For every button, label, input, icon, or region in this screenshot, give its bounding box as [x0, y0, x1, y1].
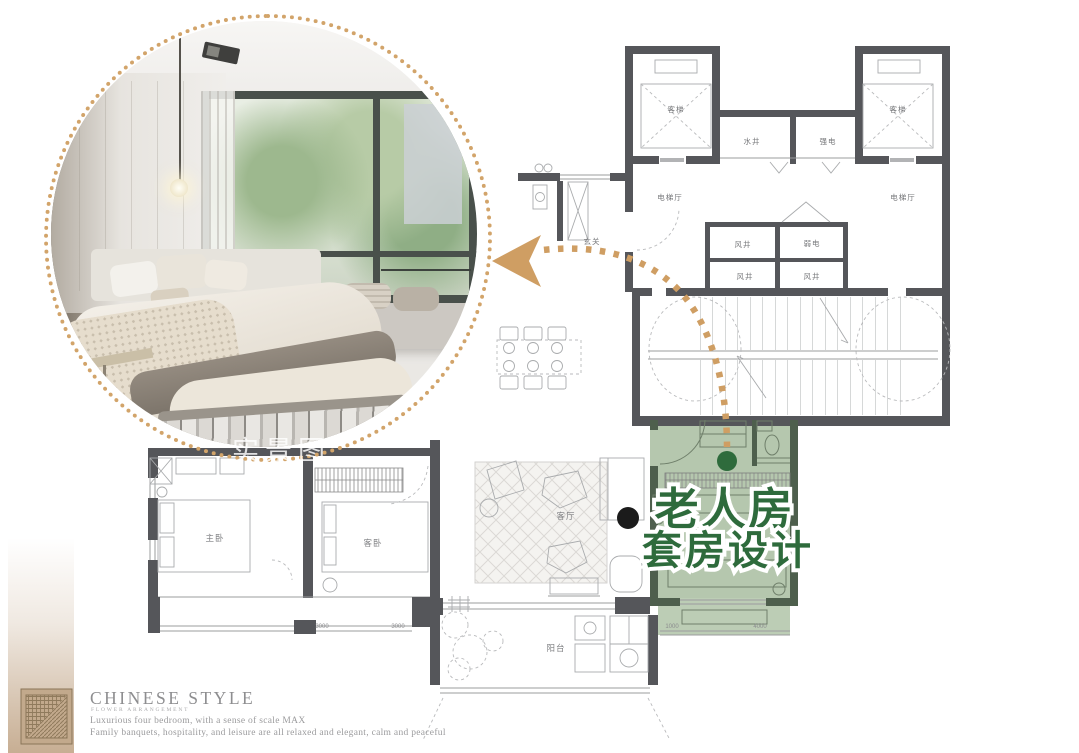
bedroom-photo: [51, 21, 477, 447]
label-guest: 客卧: [363, 538, 382, 548]
utility-shafts-top: 水井 强电: [720, 110, 855, 173]
label-living: 客厅: [556, 511, 575, 521]
callout-trail: [492, 235, 727, 447]
dim-master: 3000: [315, 624, 329, 630]
pendant-light: [170, 179, 188, 197]
suite-callout: 老人房 套房设计: [642, 485, 814, 573]
label-entry: 玄关: [584, 236, 601, 246]
brand-title: CHINESE STYLE: [90, 688, 255, 709]
callout-line1: 老人房: [655, 485, 796, 534]
label-master: 主卧: [205, 533, 224, 543]
label-hall-left: 电梯厅: [657, 192, 683, 202]
dim-suite-1: 1000: [665, 624, 679, 630]
brand-description-line1: Luxurious four bedroom, with a sense of …: [90, 716, 305, 726]
window-rail: [381, 269, 471, 271]
label-wind-shaft-3: 风井: [804, 271, 821, 281]
label-water-shaft: 水井: [744, 136, 761, 146]
desk-stool: [617, 507, 639, 529]
dim-guest: 3000: [391, 624, 405, 630]
bedrooms: 主卧 客卧 3000 3000: [148, 440, 440, 634]
photo-circle-border: [44, 14, 492, 462]
brand-subtitle: FLOWER ARRANGEMENT: [91, 707, 189, 713]
bench-cushion: [393, 287, 439, 311]
label-elevator-right: 客梯: [890, 104, 907, 114]
pillow: [204, 259, 249, 291]
living-room: 客厅: [475, 458, 644, 596]
brand-description-line2: Family banquets, hospitality, and leisur…: [90, 728, 446, 738]
elevator-block: 客梯 客梯: [625, 46, 950, 164]
balcony: 阳台: [423, 596, 670, 740]
label-wind-shaft-2: 风井: [737, 271, 754, 281]
stairwell: [632, 288, 950, 426]
wind-shafts-block: 风井 弱电 风井 风井: [705, 202, 848, 293]
arrowhead: [492, 235, 541, 287]
window-mullion: [373, 91, 380, 303]
label-elevator-left: 客梯: [668, 104, 685, 114]
label-wind-shaft-1: 风井: [735, 239, 752, 249]
pillow: [156, 253, 208, 290]
entry-kitchen: 玄关: [518, 164, 632, 246]
label-hall-right: 电梯厅: [890, 192, 916, 202]
side-table-leg: [103, 365, 106, 411]
photo-watermark: 实景图: [232, 429, 331, 468]
label-weak-electric: 弱电: [804, 238, 821, 248]
dim-suite-2: 4000: [753, 624, 767, 630]
dining-set: [497, 327, 581, 389]
pendant-cord: [179, 21, 181, 181]
presentation-sheet: 客梯 客梯 水井 强电 电梯厅 电梯厅 风井 弱电 风井 风井: [0, 0, 1079, 753]
callout-line2: 套房设计: [642, 528, 814, 573]
window-building: [404, 104, 462, 224]
callout-anchor-dot: [717, 451, 737, 471]
label-strong-electric: 强电: [820, 136, 837, 146]
brand-logo: [20, 688, 73, 745]
label-balcony: 阳台: [546, 643, 565, 653]
